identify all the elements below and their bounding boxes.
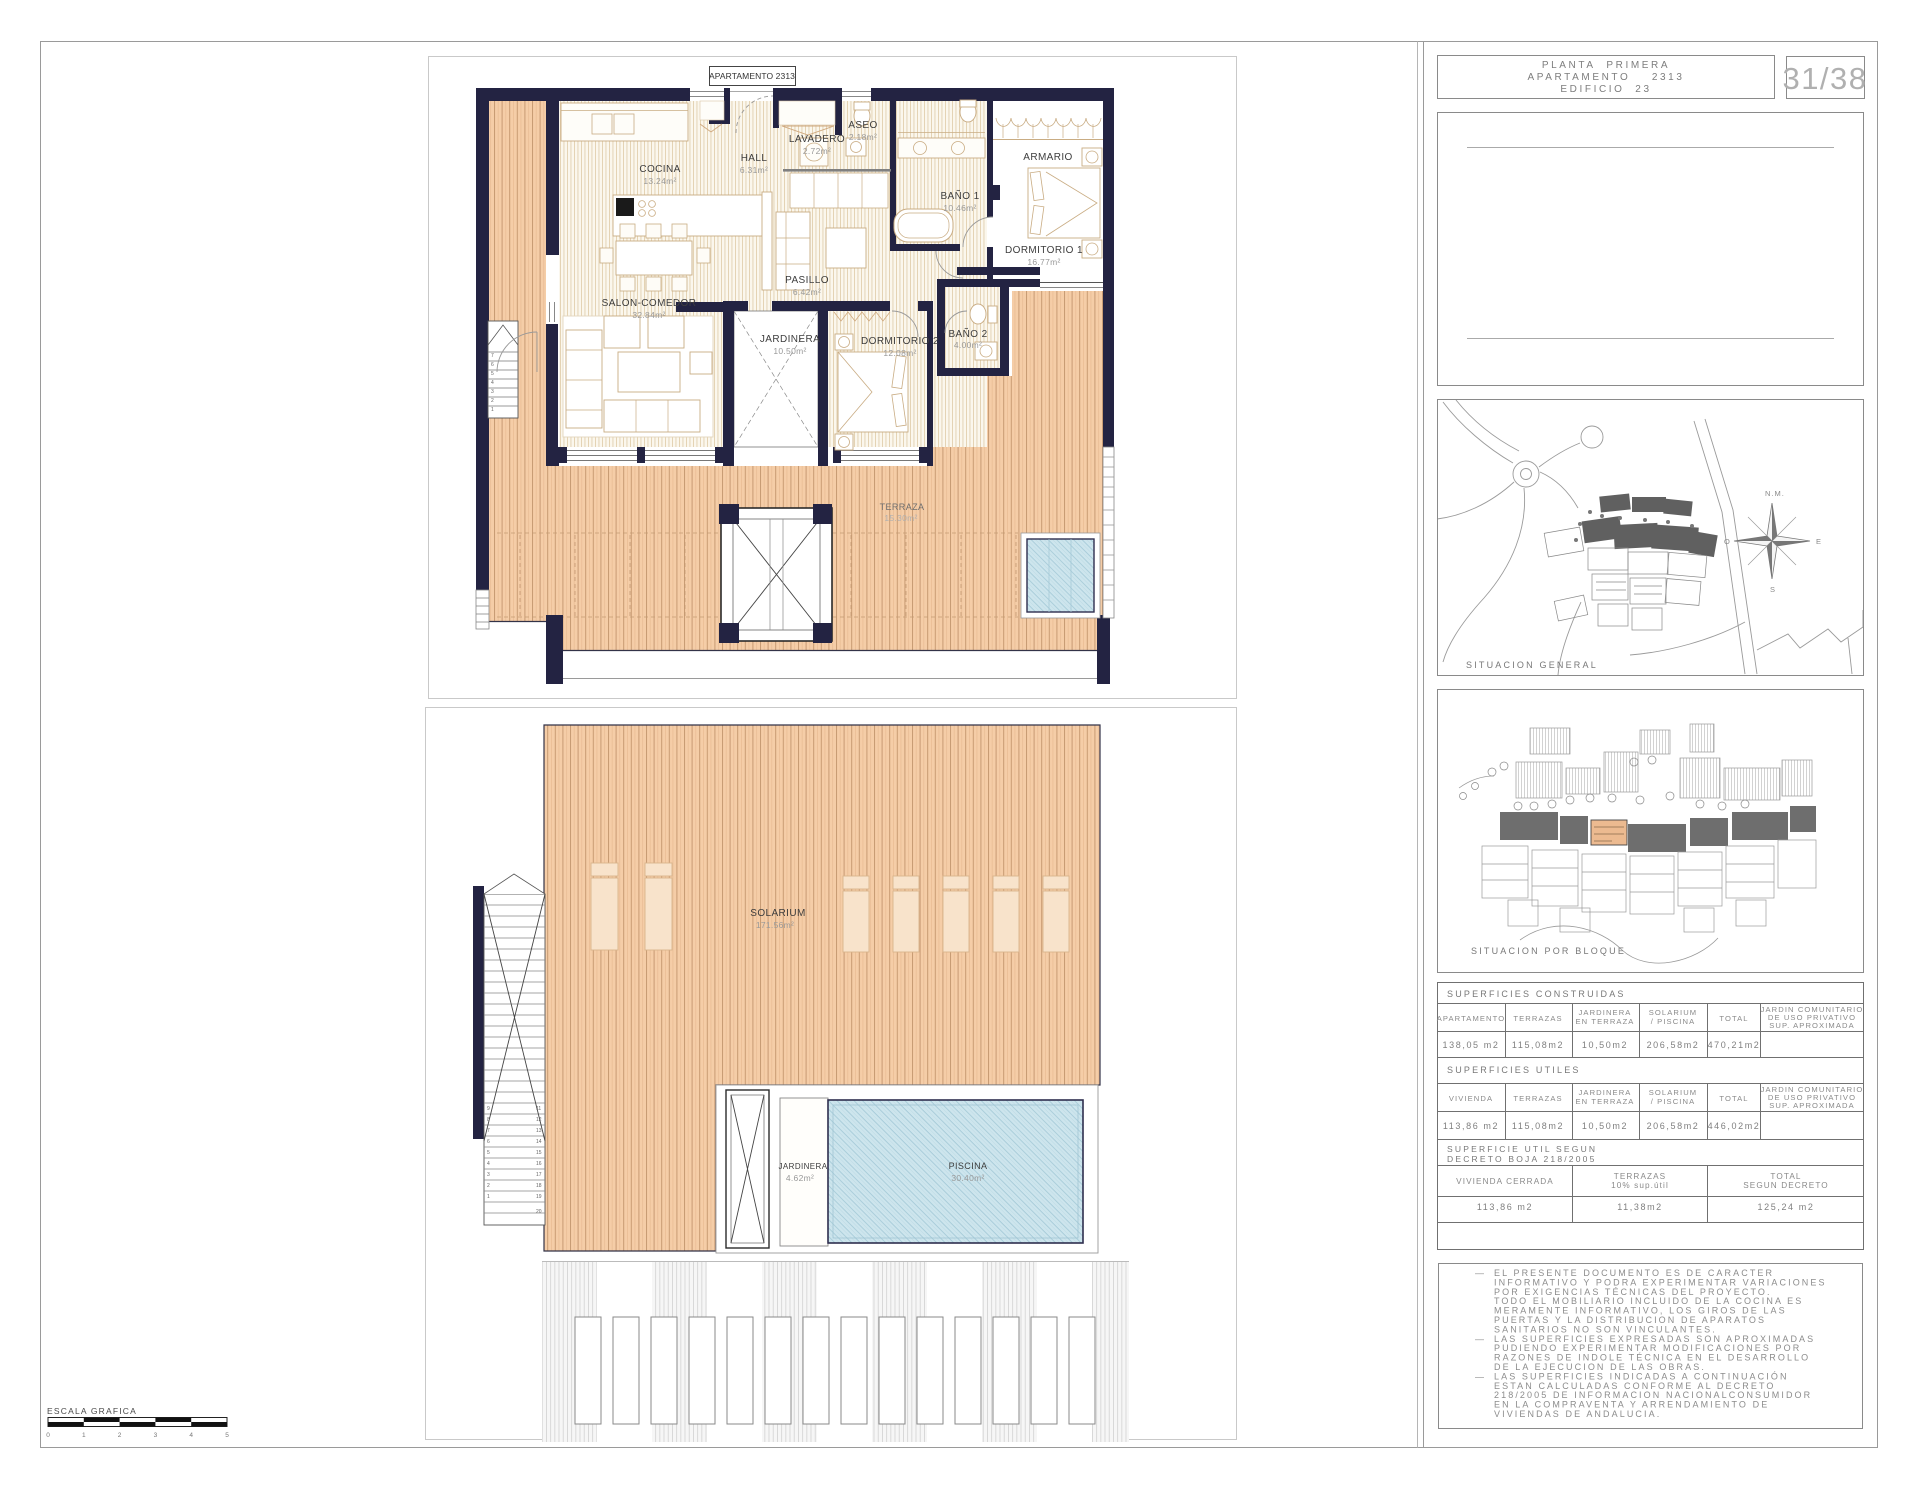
svg-text:7: 7 (487, 1128, 490, 1134)
svg-text:6: 6 (487, 1139, 490, 1145)
svg-text:2.72m²: 2.72m² (803, 146, 831, 156)
svg-text:5: 5 (225, 1432, 229, 1439)
svg-text:15.30m²: 15.30m² (884, 513, 917, 523)
svg-text:PASILLO: PASILLO (785, 275, 829, 286)
svg-text:115,08m2: 115,08m2 (1512, 1121, 1564, 1131)
svg-text:S: S (1770, 585, 1775, 594)
svg-text:4.62m²: 4.62m² (786, 1173, 814, 1183)
svg-text:TOTAL: TOTAL (1719, 1014, 1748, 1023)
svg-text:11,38m2: 11,38m2 (1617, 1202, 1663, 1212)
svg-text:32.84m²: 32.84m² (632, 310, 665, 320)
svg-text:VIVIENDA: VIVIENDA (1449, 1094, 1493, 1103)
svg-text:—: — (1475, 1371, 1486, 1381)
svg-text:SUP. APROXIMADA: SUP. APROXIMADA (1769, 1101, 1855, 1110)
svg-text:4.00m²: 4.00m² (954, 340, 982, 350)
svg-text:N.M.: N.M. (1765, 489, 1785, 498)
svg-text:470,21m2: 470,21m2 (1708, 1040, 1761, 1050)
svg-text:6.42m²: 6.42m² (793, 287, 821, 297)
svg-text:4: 4 (189, 1432, 193, 1439)
svg-text:14: 14 (536, 1139, 542, 1145)
svg-text:APARTAMENTO 2313: APARTAMENTO 2313 (1527, 72, 1684, 83)
svg-text:138,05 m2: 138,05 m2 (1443, 1040, 1500, 1050)
svg-text:5: 5 (487, 1150, 490, 1156)
svg-text:5: 5 (491, 371, 494, 377)
svg-text:SALON-COMEDOR: SALON-COMEDOR (602, 298, 697, 309)
svg-text:—: — (1475, 1334, 1486, 1344)
svg-text:2: 2 (118, 1432, 122, 1439)
svg-text:DORMITORIO 1: DORMITORIO 1 (1005, 245, 1083, 256)
svg-text:13: 13 (536, 1128, 542, 1134)
svg-text:2.18m²: 2.18m² (849, 132, 877, 142)
svg-text:ARMARIO: ARMARIO (1023, 152, 1072, 163)
svg-text:6.31m²: 6.31m² (740, 165, 768, 175)
svg-text:3: 3 (487, 1172, 490, 1178)
svg-text:206,58m2: 206,58m2 (1647, 1121, 1700, 1131)
svg-text:DECRETO BOJA 218/2005: DECRETO BOJA 218/2005 (1447, 1154, 1597, 1164)
svg-text:2: 2 (487, 1183, 490, 1189)
svg-text:206,58m2: 206,58m2 (1647, 1040, 1700, 1050)
svg-text:1: 1 (491, 407, 494, 413)
svg-text:4: 4 (487, 1161, 490, 1167)
svg-text:JARDINERA: JARDINERA (760, 334, 820, 345)
svg-text:12.08m²: 12.08m² (883, 348, 916, 358)
svg-text:16.77m²: 16.77m² (1027, 257, 1060, 267)
svg-text:EN TERRAZA: EN TERRAZA (1576, 1017, 1635, 1026)
svg-text:/ PISCINA: / PISCINA (1651, 1017, 1696, 1026)
svg-text:VIVIENDA CERRADA: VIVIENDA CERRADA (1456, 1177, 1554, 1186)
svg-text:113,86 m2: 113,86 m2 (1477, 1202, 1533, 1212)
svg-text:O: O (1724, 537, 1730, 546)
svg-text:10,50m2: 10,50m2 (1582, 1121, 1628, 1131)
svg-text:19: 19 (536, 1194, 542, 1200)
svg-text:10,50m2: 10,50m2 (1582, 1040, 1628, 1050)
svg-text:DORMITORIO 2: DORMITORIO 2 (861, 336, 939, 347)
svg-text:COCINA: COCINA (639, 164, 680, 175)
svg-text:10% sup.útil: 10% sup.útil (1611, 1181, 1669, 1190)
svg-text:PLANTA PRIMERA: PLANTA PRIMERA (1542, 60, 1670, 71)
svg-text:TOTAL: TOTAL (1770, 1172, 1801, 1181)
svg-text:JARDINERA: JARDINERA (1579, 1088, 1632, 1097)
svg-text:8: 8 (487, 1117, 490, 1123)
svg-text:JARDINERA: JARDINERA (779, 1162, 828, 1171)
svg-text:ASEO: ASEO (848, 120, 877, 131)
svg-text:31/38: 31/38 (1782, 61, 1867, 96)
svg-text:SOLARIUM: SOLARIUM (750, 908, 805, 919)
svg-text:E: E (1816, 537, 1821, 546)
svg-text:HALL: HALL (741, 153, 768, 164)
svg-text:JARDINERA: JARDINERA (1579, 1008, 1632, 1017)
svg-text:SEGUN DECRETO: SEGUN DECRETO (1743, 1181, 1829, 1190)
svg-text:446,02m2: 446,02m2 (1708, 1121, 1761, 1131)
svg-text:13.24m²: 13.24m² (643, 176, 676, 186)
svg-text:3: 3 (491, 389, 494, 395)
svg-text:BAÑO 1: BAÑO 1 (940, 189, 979, 202)
svg-text:ESCALA GRAFICA: ESCALA GRAFICA (47, 1406, 137, 1416)
svg-text:4: 4 (491, 380, 494, 386)
svg-text:SITUACION GENERAL: SITUACION GENERAL (1466, 660, 1598, 670)
svg-text:SITUACION POR BLOQUE: SITUACION POR BLOQUE (1471, 946, 1626, 956)
svg-text:SUPERFICIES UTILES: SUPERFICIES UTILES (1447, 1065, 1581, 1075)
svg-text:15: 15 (536, 1150, 542, 1156)
svg-text:TERRAZA: TERRAZA (880, 502, 925, 512)
svg-text:6: 6 (491, 362, 494, 368)
svg-text:30.40m²: 30.40m² (951, 1173, 984, 1183)
svg-text:10.46m²: 10.46m² (943, 203, 976, 213)
svg-text:125,24 m2: 125,24 m2 (1758, 1202, 1815, 1212)
svg-text:3: 3 (154, 1432, 158, 1439)
svg-text:18: 18 (536, 1183, 542, 1189)
svg-text:115,08m2: 115,08m2 (1512, 1040, 1564, 1050)
svg-text:APARTAMENTO 2313: APARTAMENTO 2313 (709, 71, 795, 81)
svg-text:9: 9 (487, 1106, 490, 1112)
svg-text:TERRAZAS: TERRAZAS (1614, 1172, 1666, 1181)
svg-text:EDIFICIO 23: EDIFICIO 23 (1560, 84, 1651, 95)
svg-text:VIVIENDAS DE ANDALUCIA.: VIVIENDAS DE ANDALUCIA. (1494, 1409, 1661, 1419)
svg-text:SUPERFICIES CONSTRUIDAS: SUPERFICIES CONSTRUIDAS (1447, 989, 1626, 999)
svg-text:SOLARIUM: SOLARIUM (1649, 1088, 1697, 1097)
svg-text:APARTAMENTO: APARTAMENTO (1437, 1014, 1506, 1023)
svg-text:—: — (1475, 1268, 1486, 1278)
svg-text:SOLARIUM: SOLARIUM (1649, 1008, 1697, 1017)
svg-text:113,86 m2: 113,86 m2 (1443, 1121, 1499, 1131)
svg-text:7: 7 (491, 353, 494, 359)
svg-text:20: 20 (536, 1209, 542, 1215)
svg-text:0: 0 (46, 1432, 50, 1439)
svg-text:SUPERFICIE UTIL SEGUN: SUPERFICIE UTIL SEGUN (1447, 1144, 1597, 1154)
svg-text:17: 17 (536, 1172, 542, 1178)
svg-text:TOTAL: TOTAL (1719, 1094, 1748, 1103)
svg-text:PISCINA: PISCINA (949, 1161, 988, 1171)
svg-text:EN TERRAZA: EN TERRAZA (1576, 1097, 1635, 1106)
svg-text:171.56m²: 171.56m² (756, 920, 794, 930)
svg-text:1: 1 (487, 1194, 490, 1200)
svg-text:12: 12 (536, 1117, 542, 1123)
svg-text:16: 16 (536, 1161, 542, 1167)
svg-text:/ PISCINA: / PISCINA (1651, 1097, 1696, 1106)
svg-text:LAVADERO: LAVADERO (789, 134, 845, 145)
svg-text:1: 1 (82, 1432, 86, 1439)
svg-text:BAÑO 2: BAÑO 2 (948, 327, 987, 340)
svg-text:TERRAZAS: TERRAZAS (1513, 1014, 1562, 1023)
svg-text:TERRAZAS: TERRAZAS (1513, 1094, 1562, 1103)
svg-text:2: 2 (491, 398, 494, 404)
svg-text:SUP. APROXIMADA: SUP. APROXIMADA (1769, 1021, 1855, 1030)
svg-text:11: 11 (536, 1106, 541, 1112)
svg-text:10.50m²: 10.50m² (773, 346, 806, 356)
